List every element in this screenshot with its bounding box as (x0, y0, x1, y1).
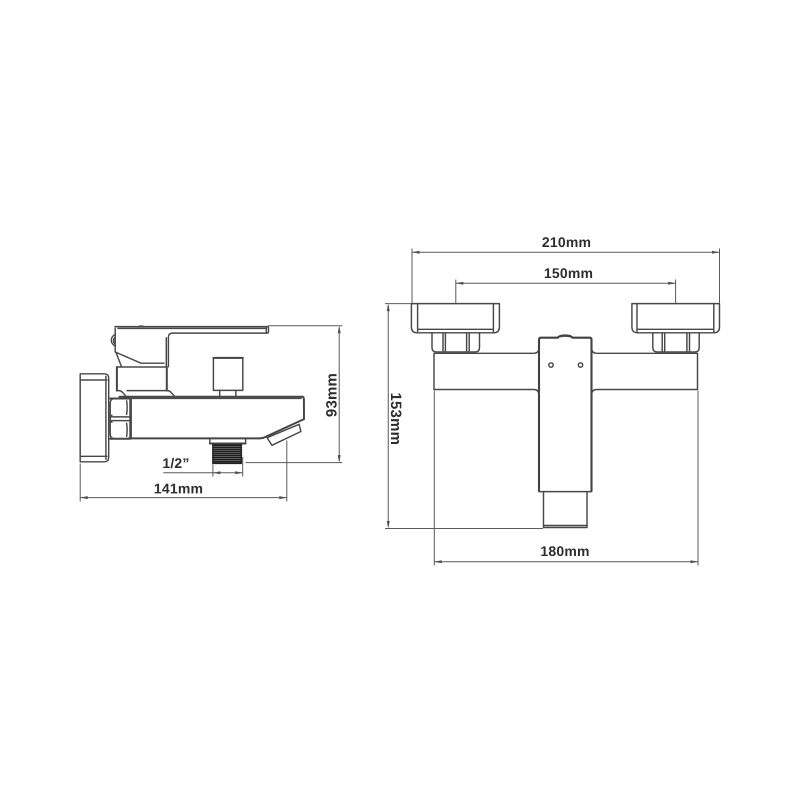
svg-text:93mm: 93mm (323, 373, 340, 417)
svg-text:153mm: 153mm (387, 392, 404, 445)
svg-text:180mm: 180mm (540, 543, 589, 559)
svg-text:210mm: 210mm (542, 234, 591, 250)
svg-text:141mm: 141mm (154, 480, 203, 496)
svg-text:150mm: 150mm (544, 265, 593, 281)
svg-text:1/2”: 1/2” (162, 455, 189, 471)
